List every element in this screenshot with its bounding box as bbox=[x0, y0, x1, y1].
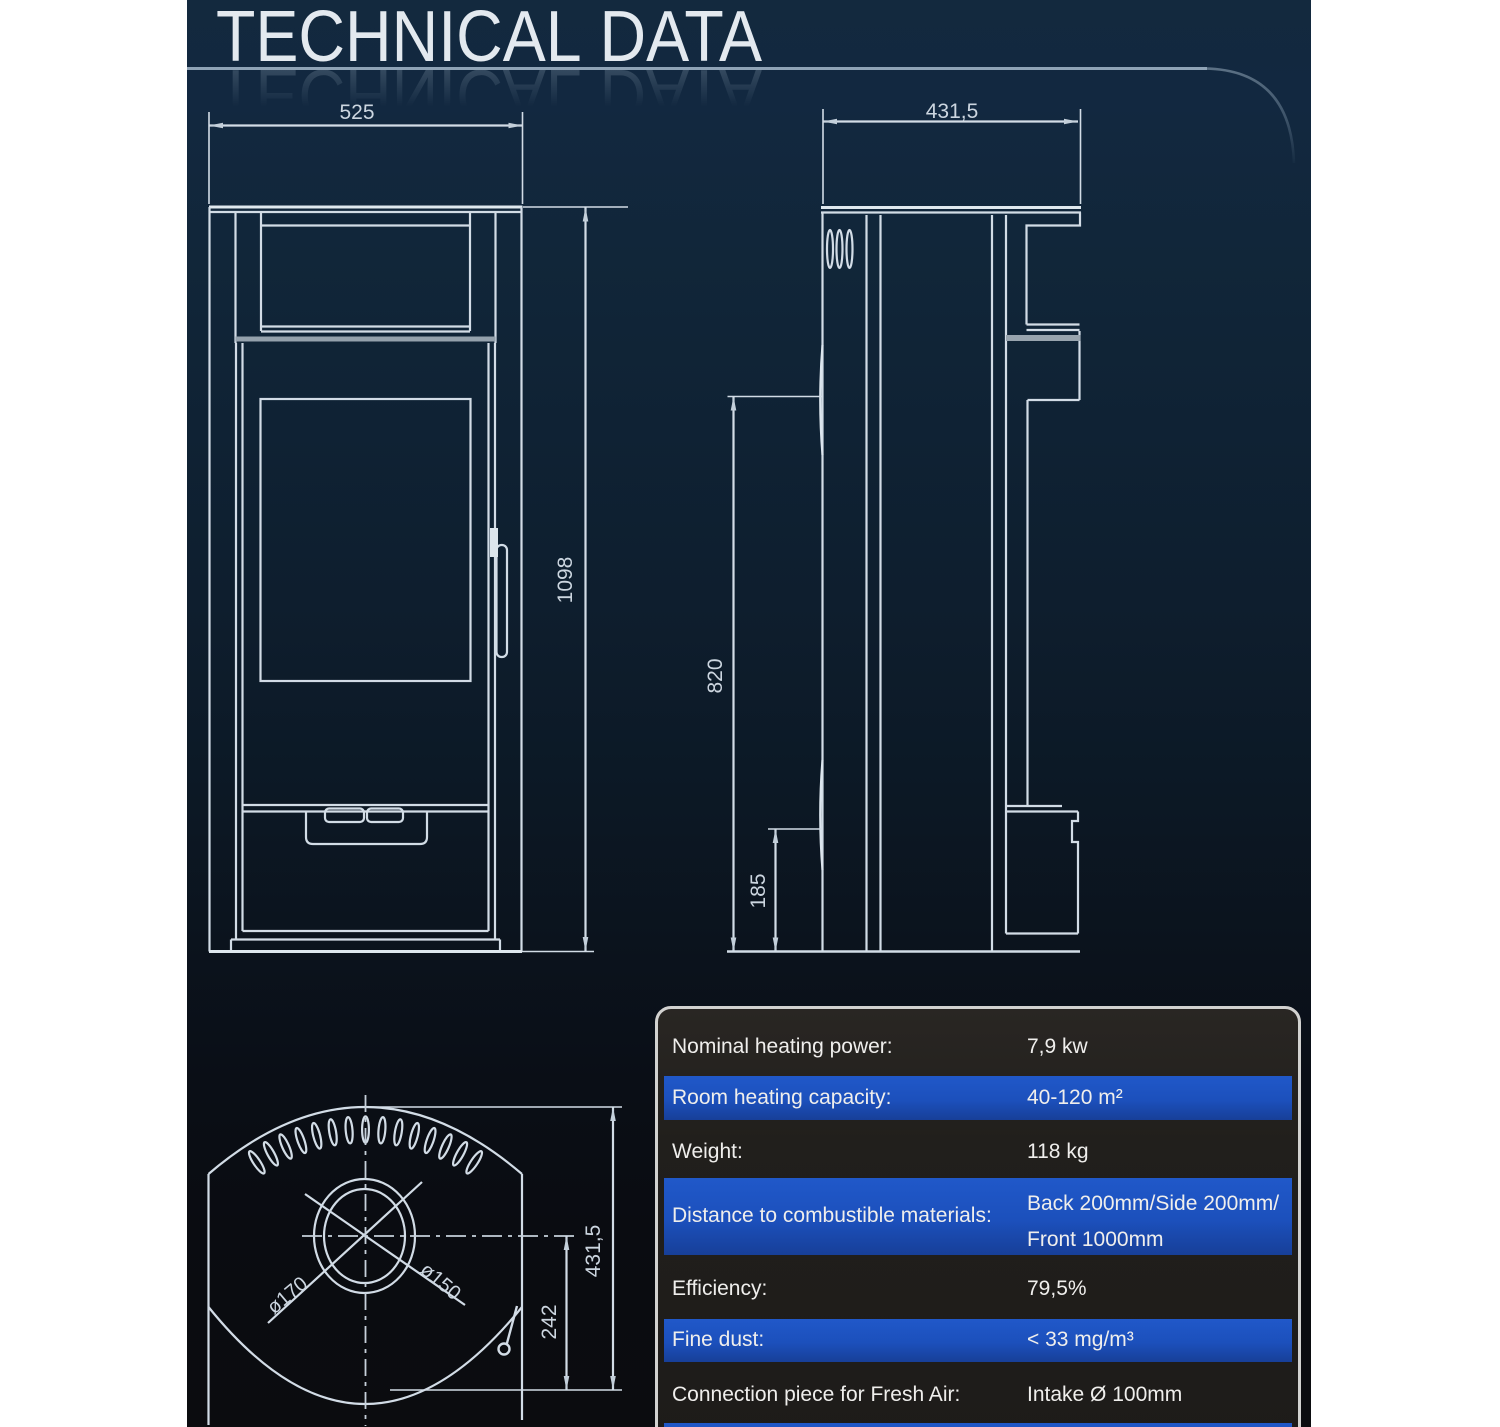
svg-text:525: 525 bbox=[339, 101, 374, 124]
svg-text:242: 242 bbox=[538, 1304, 561, 1339]
svg-text:185: 185 bbox=[747, 873, 770, 908]
svg-text:ø150: ø150 bbox=[416, 1259, 465, 1305]
svg-text:431,5: 431,5 bbox=[582, 1225, 605, 1278]
svg-text:ø170: ø170 bbox=[263, 1273, 312, 1319]
svg-text:431,5: 431,5 bbox=[926, 100, 979, 123]
svg-text:1098: 1098 bbox=[554, 557, 577, 604]
svg-text:820: 820 bbox=[704, 658, 727, 693]
